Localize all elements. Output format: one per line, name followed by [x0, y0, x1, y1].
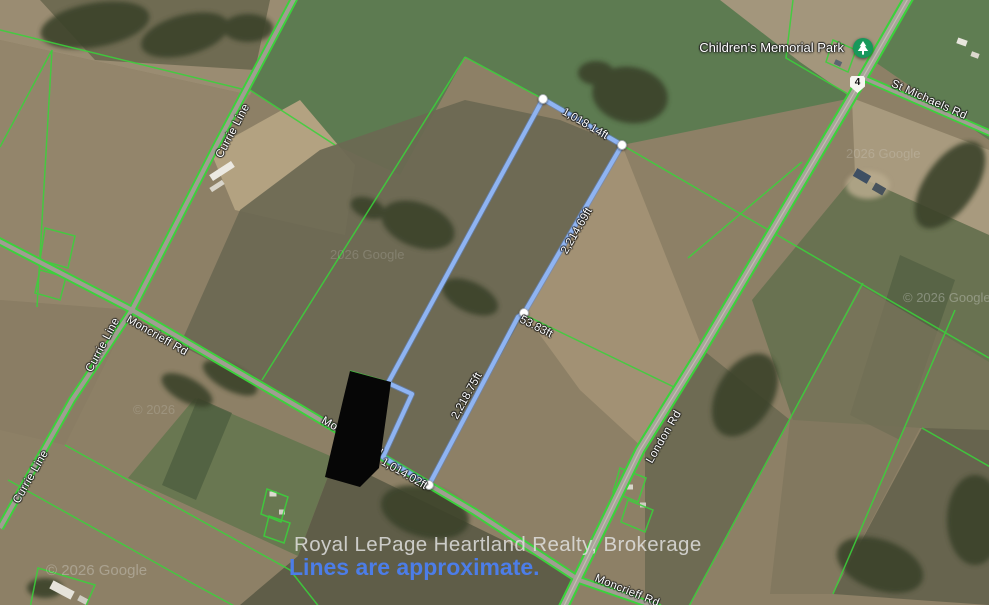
google-watermark: 2026 Google [330, 247, 404, 262]
tree-icon [853, 38, 873, 58]
boundary-vertex-handle[interactable] [618, 141, 627, 150]
satellite-imagery-layer [0, 0, 989, 605]
google-watermark: 2026 Google [846, 146, 920, 161]
boundary-vertex-handle[interactable] [539, 95, 548, 104]
lines-approximate-disclaimer: Lines are approximate. [289, 554, 540, 581]
satellite-map-view: Currie Line Currie Line Currie Line Monc… [0, 0, 989, 605]
google-watermark: © 2026 Google [46, 562, 147, 579]
park-label: Children's Memorial Park [648, 40, 844, 55]
google-watermark: © 2026 Google [903, 290, 989, 305]
google-watermark: © 2026 [133, 402, 175, 417]
park-marker[interactable] [853, 38, 873, 58]
